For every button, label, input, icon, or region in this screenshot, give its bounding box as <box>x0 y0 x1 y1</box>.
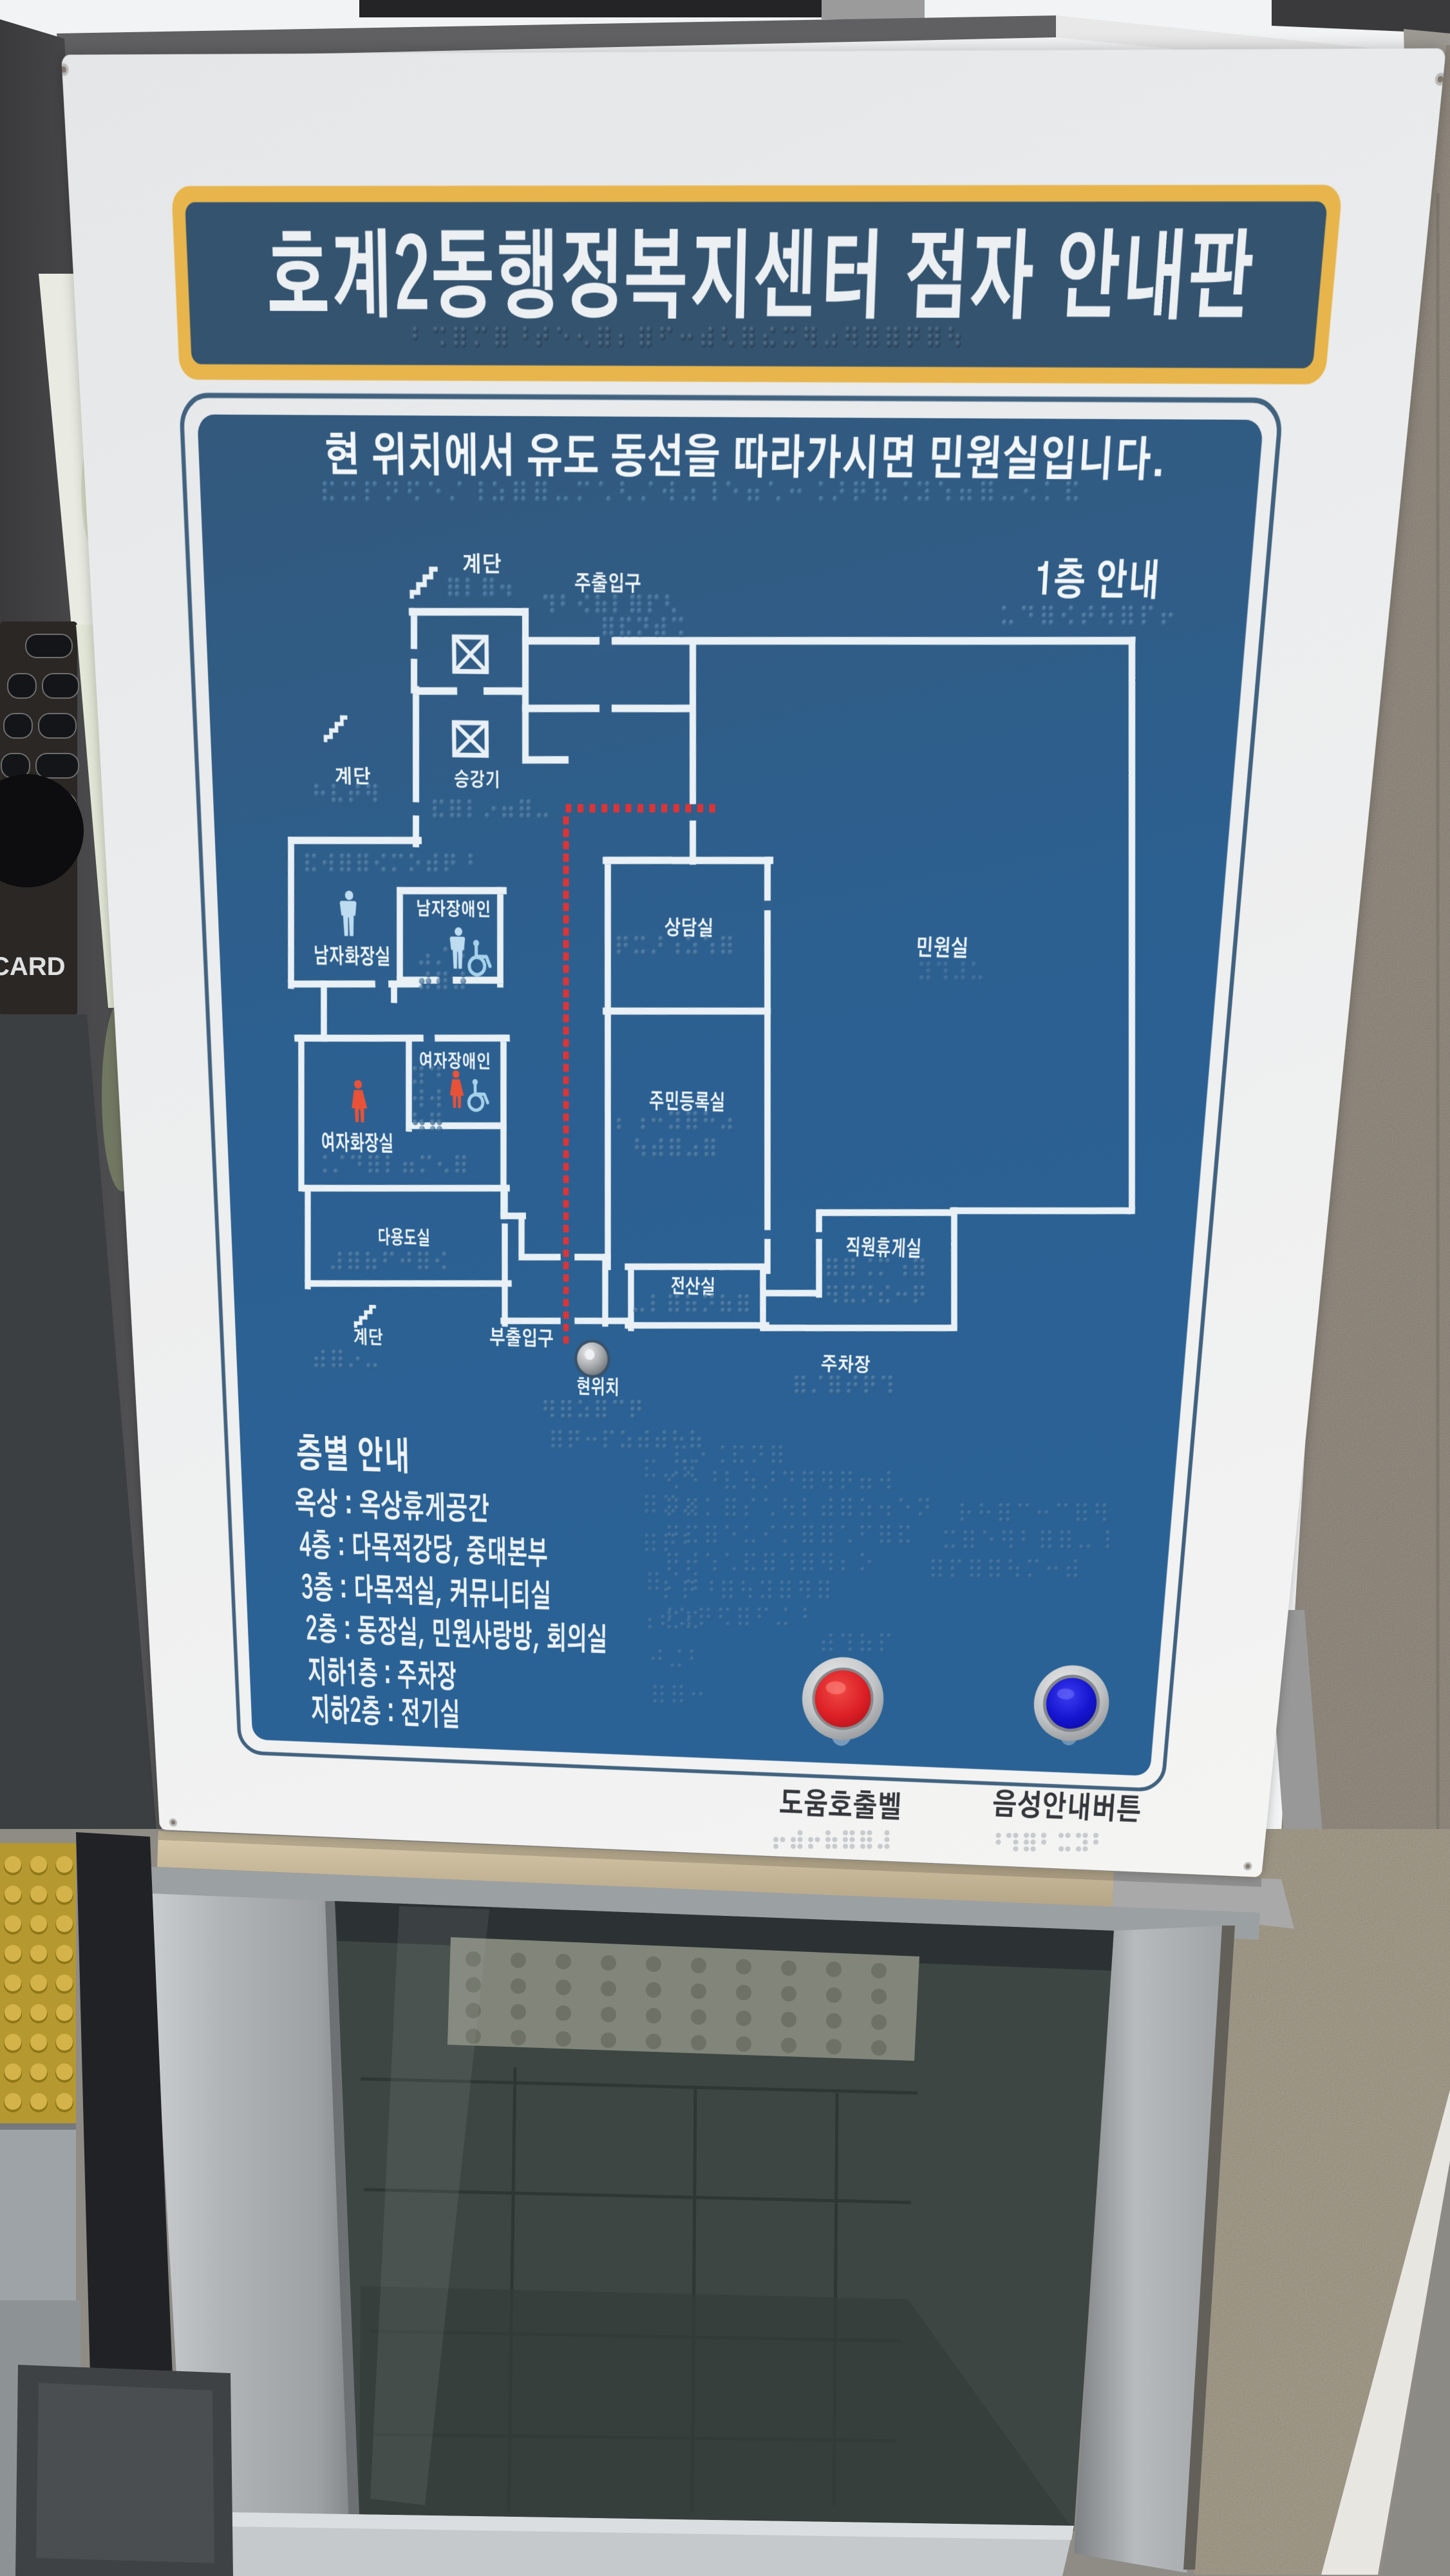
svg-text:CARD: CARD <box>0 952 66 981</box>
